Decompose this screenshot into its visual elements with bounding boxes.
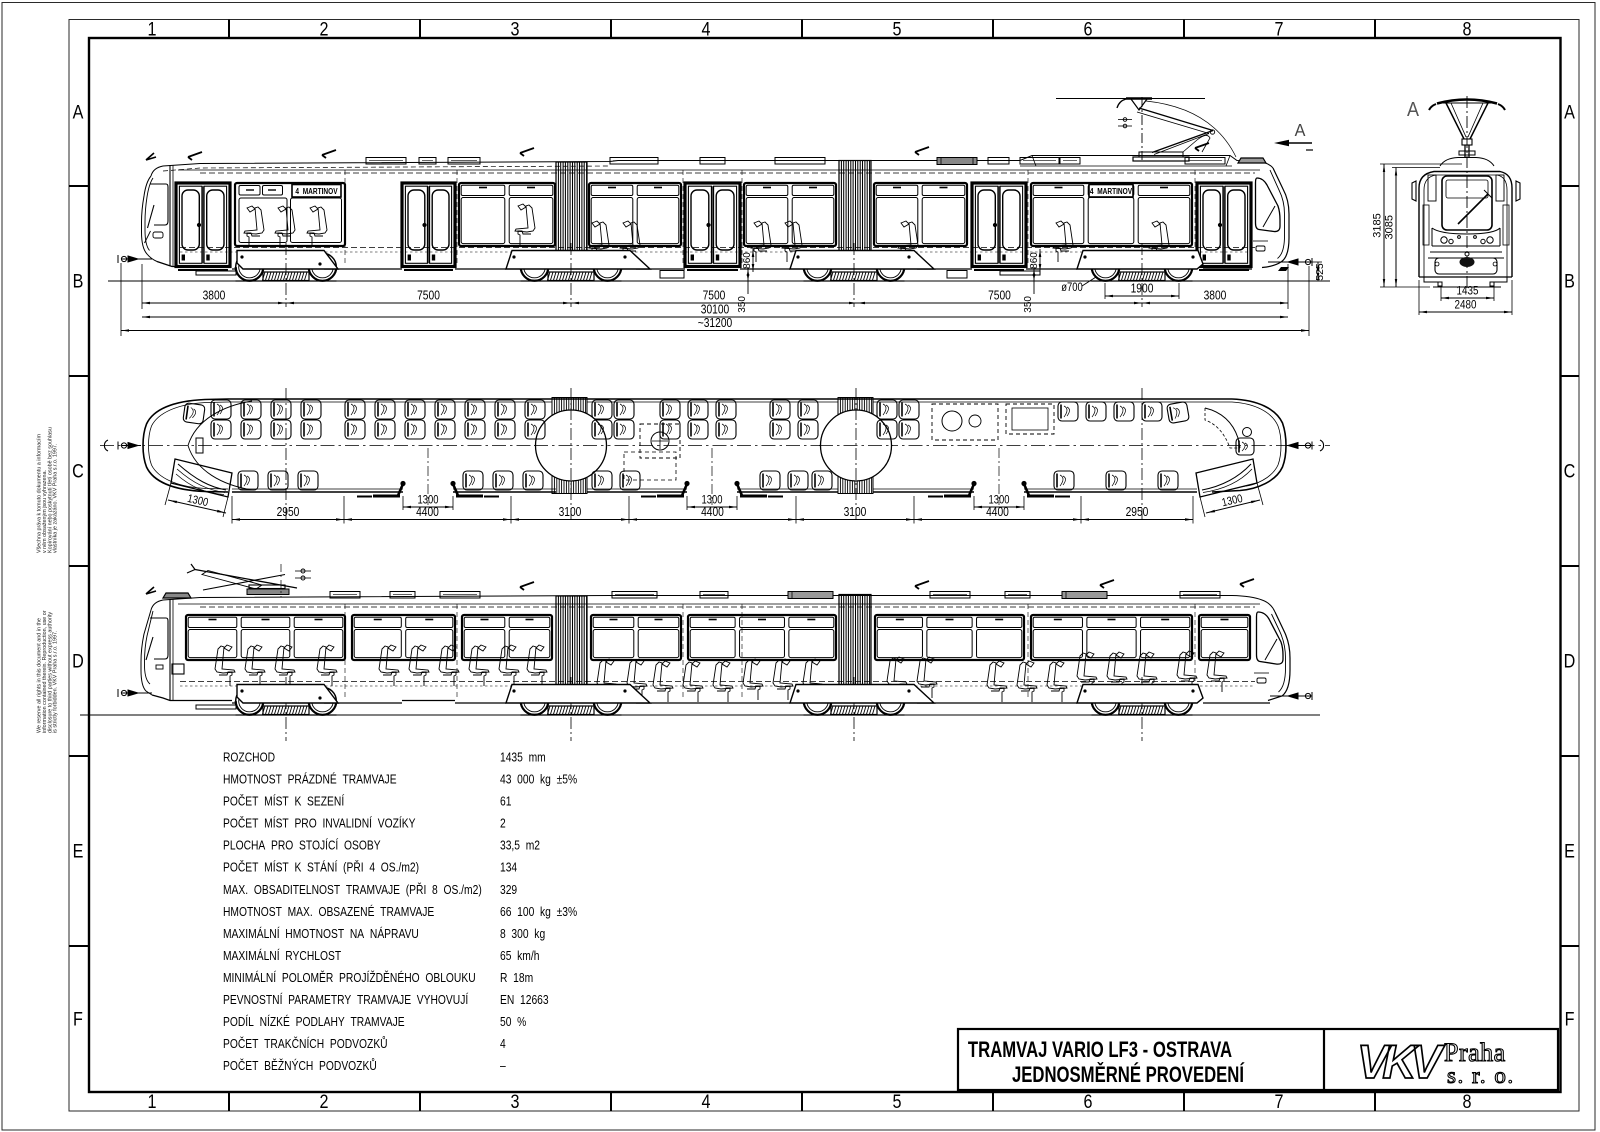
svg-text:1300: 1300 — [186, 492, 210, 510]
svg-text:A: A — [73, 101, 84, 123]
svg-text:8: 8 — [1463, 1091, 1472, 1113]
svg-text:1: 1 — [148, 18, 157, 40]
svg-text:4400: 4400 — [416, 506, 439, 519]
svg-text:is strictly forbidden. VKV Pra: is strictly forbidden. VKV Praha s.r.o. … — [53, 631, 59, 733]
svg-text:~31200: ~31200 — [698, 317, 732, 330]
svg-text:7500: 7500 — [417, 290, 440, 303]
svg-text:4 MARTINOV: 4 MARTINOV — [295, 186, 337, 196]
svg-text:4: 4 — [702, 18, 711, 40]
svg-text:4 MARTINOV: 4 MARTINOV — [1090, 186, 1132, 196]
svg-text:43 000 kg ±5%: 43 000 kg ±5% — [500, 771, 578, 787]
svg-text:MINIMÁLNÍ POLOMĚR PROJÍŽDĚNÉ: MINIMÁLNÍ POLOMĚR PROJÍŽDĚNÉHO OBLOUKU — [223, 970, 476, 986]
svg-text:4400: 4400 — [986, 506, 1009, 519]
svg-text:A: A — [1295, 120, 1306, 140]
svg-text:1300: 1300 — [1221, 492, 1245, 510]
svg-text:PEVNOSTNÍ PARAMETRY TRAMVAJE: PEVNOSTNÍ PARAMETRY TRAMVAJE VYHOVUJÍ — [223, 992, 469, 1008]
svg-text:MAXIMÁLNÍ RYCHLOST: MAXIMÁLNÍ RYCHLOST — [223, 948, 341, 964]
svg-text:E: E — [73, 840, 84, 862]
svg-text:1900: 1900 — [1131, 283, 1154, 296]
svg-text:TRAMVAJ VARIO LF3 - OSTRAVA: TRAMVAJ VARIO LF3 - OSTRAVA — [968, 1038, 1232, 1063]
svg-text:A: A — [1407, 99, 1419, 121]
svg-text:C: C — [1564, 460, 1576, 482]
svg-text:POČET MÍST K STÁNÍ (PŘI 4: POČET MÍST K STÁNÍ (PŘI 4 OS./m2) — [223, 859, 419, 875]
svg-text:7500: 7500 — [703, 290, 726, 303]
svg-text:HMOTNOST PRÁZDNÉ TRAMVAJE: HMOTNOST PRÁZDNÉ TRAMVAJE — [223, 771, 397, 787]
svg-text:33,5 m2: 33,5 m2 — [500, 837, 540, 853]
svg-text:POČET BĚŽNÝCH PODVOZKŮ: POČET BĚŽNÝCH PODVOZKŮ — [223, 1058, 377, 1074]
svg-text:MAXIMÁLNÍ HMOTNOST NA NÁPRA: MAXIMÁLNÍ HMOTNOST NA NÁPRAVU — [223, 926, 419, 942]
svg-text:5: 5 — [893, 1091, 902, 1113]
svg-text:2: 2 — [320, 18, 329, 40]
svg-text:F: F — [73, 1008, 83, 1030]
svg-text:3100: 3100 — [844, 506, 867, 519]
svg-text:134: 134 — [500, 859, 518, 875]
svg-text:3800: 3800 — [203, 290, 226, 303]
svg-text:30100: 30100 — [701, 304, 729, 317]
svg-text:3: 3 — [511, 18, 520, 40]
svg-text:4: 4 — [702, 1091, 711, 1113]
svg-text:–: – — [500, 1058, 506, 1074]
svg-text:350: 350 — [1023, 296, 1034, 313]
svg-text:ROZCHOD: ROZCHOD — [223, 749, 275, 765]
svg-text:POČET MÍST K SEZENÍ: POČET MÍST K SEZENÍ — [223, 793, 345, 809]
svg-text:50 %: 50 % — [500, 1014, 527, 1030]
svg-text:D: D — [72, 650, 84, 672]
svg-text:1: 1 — [148, 1091, 157, 1113]
svg-text:1435 mm: 1435 mm — [500, 749, 546, 765]
svg-text:3185: 3185 — [1372, 213, 1384, 237]
svg-text:3800: 3800 — [1204, 290, 1227, 303]
svg-text:2: 2 — [500, 815, 506, 831]
svg-text:F: F — [1565, 1008, 1575, 1030]
svg-text:7500: 7500 — [988, 290, 1011, 303]
svg-text:61: 61 — [500, 793, 511, 809]
svg-text:3: 3 — [511, 1091, 520, 1113]
svg-text:vlastníka je zakázáno. VKV Pra: vlastníka je zakázáno. VKV Praha s.r.o. … — [53, 444, 59, 553]
svg-text:A: A — [1564, 101, 1575, 123]
svg-text:7: 7 — [1275, 1091, 1284, 1113]
svg-text:1435: 1435 — [1457, 285, 1479, 298]
svg-text:JEDNOSMĚRNÉ PROVEDENÍ: JEDNOSMĚRNÉ PROVEDENÍ — [1012, 1061, 1244, 1088]
svg-text:D: D — [1564, 650, 1576, 672]
svg-text:2480: 2480 — [1455, 299, 1477, 312]
svg-text:525: 525 — [1314, 263, 1326, 281]
svg-text:B: B — [73, 270, 84, 292]
svg-text:HMOTNOST MAX. OBSAZENÉ TRAM: HMOTNOST MAX. OBSAZENÉ TRAMVAJE — [223, 904, 434, 920]
svg-text:ø700: ø700 — [1061, 281, 1083, 294]
svg-text:VKV: VKV — [1357, 1035, 1445, 1088]
svg-text:6: 6 — [1084, 18, 1093, 40]
svg-text:POČET MÍST PRO INVALIDNÍ V: POČET MÍST PRO INVALIDNÍ VOZÍKY — [223, 815, 416, 831]
svg-text:C: C — [72, 460, 84, 482]
svg-text:2950: 2950 — [1126, 506, 1149, 519]
svg-text:2: 2 — [320, 1091, 329, 1113]
svg-text:MAX. OBSADITELNOST TRAMVAJE: MAX. OBSADITELNOST TRAMVAJE (PŘI 8 OS./m… — [223, 882, 482, 898]
svg-text:65 km/h: 65 km/h — [500, 948, 539, 964]
svg-text:PODÍL NÍZKÉ PODLAHY TRAMVAJ: PODÍL NÍZKÉ PODLAHY TRAMVAJE — [223, 1014, 405, 1030]
svg-text:PLOCHA PRO STOJÍCÍ OSOBY: PLOCHA PRO STOJÍCÍ OSOBY — [223, 837, 381, 853]
svg-text:329: 329 — [500, 882, 518, 898]
svg-text:3085: 3085 — [1384, 215, 1396, 239]
svg-text:6: 6 — [1084, 1091, 1093, 1113]
svg-text:860: 860 — [742, 252, 753, 269]
svg-text:E: E — [1564, 840, 1575, 862]
svg-text:3100: 3100 — [559, 506, 582, 519]
svg-text:B: B — [1564, 270, 1575, 292]
svg-text:8 300 kg: 8 300 kg — [500, 926, 545, 942]
svg-text:66 100 kg ±3%: 66 100 kg ±3% — [500, 904, 578, 920]
svg-text:350: 350 — [737, 296, 748, 313]
svg-text:2950: 2950 — [277, 506, 300, 519]
svg-text:5: 5 — [893, 18, 902, 40]
svg-text:EN 12663: EN 12663 — [500, 992, 549, 1008]
svg-text:POČET TRAKČNÍCH PODVOZKŮ: POČET TRAKČNÍCH PODVOZKŮ — [223, 1036, 388, 1052]
svg-text:4400: 4400 — [701, 506, 724, 519]
svg-text:4: 4 — [500, 1036, 506, 1052]
svg-text:8: 8 — [1463, 18, 1472, 40]
svg-text:s. r. o.: s. r. o. — [1447, 1063, 1515, 1088]
svg-text:R 18m: R 18m — [500, 970, 533, 986]
svg-text:7: 7 — [1275, 18, 1284, 40]
svg-text:860: 860 — [1029, 252, 1040, 269]
